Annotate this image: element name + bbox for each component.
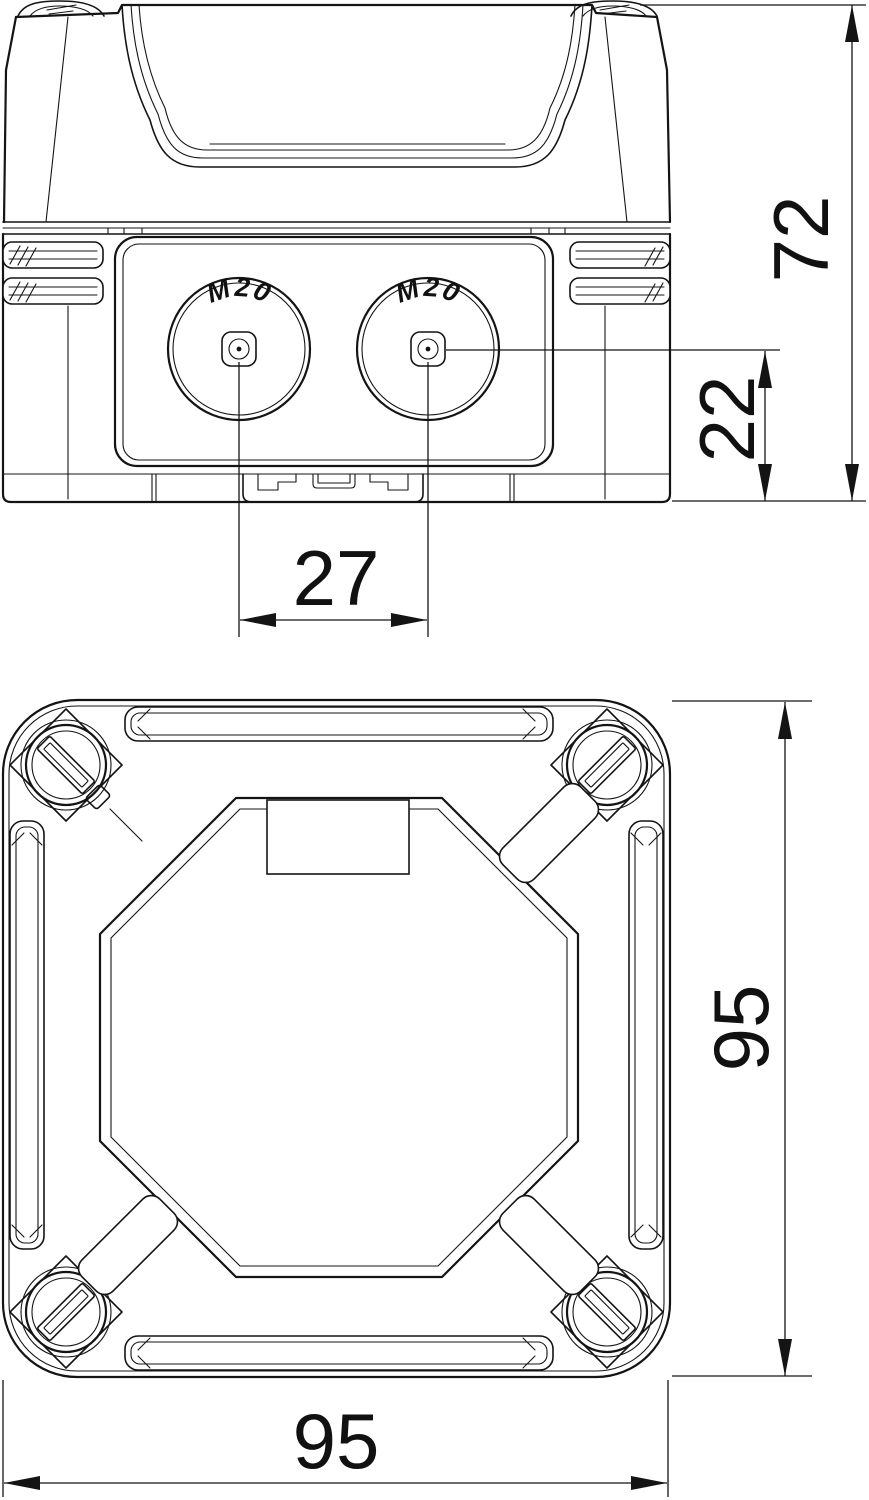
label-plate <box>267 800 409 874</box>
dim-arrow-down <box>778 1339 792 1376</box>
vent-ribs-right <box>570 242 670 304</box>
front-panel <box>115 237 553 466</box>
drawing-sheet: M20 M20 72 22 <box>0 0 869 1500</box>
dim-label-spacing: 27 <box>293 534 380 622</box>
dim-label-height: 72 <box>757 196 845 283</box>
dim-arrow-down <box>758 464 772 501</box>
dim-arrow-up <box>778 702 792 739</box>
plan-view <box>3 700 670 1377</box>
base-body: M20 M20 <box>3 234 670 502</box>
front-view: M20 M20 <box>3 1 670 502</box>
dim-label-entry-height: 22 <box>683 376 771 463</box>
diagonal-pad-top-right <box>495 779 604 888</box>
dimension-depth: 95 <box>672 701 812 1376</box>
technical-drawing: M20 M20 72 22 <box>0 0 869 1500</box>
lid-left-bevel-line <box>46 17 68 222</box>
dim-arrow-down <box>845 464 859 501</box>
edge-channel-bottom <box>125 1336 553 1370</box>
lid-right-bevel-line <box>605 17 627 222</box>
dimension-width: 95 <box>3 1380 668 1497</box>
edge-channel-right <box>629 821 663 1249</box>
vent-ribs-left <box>3 242 103 304</box>
lid-left-edge <box>4 17 16 222</box>
dim-arrow-right <box>391 613 427 627</box>
lid-joint-seam <box>3 228 670 234</box>
edge-channel-left <box>10 821 44 1249</box>
lid <box>3 1 670 222</box>
dim-arrow-right <box>631 1476 667 1490</box>
edge-channel-top <box>125 707 553 741</box>
dim-label-depth: 95 <box>697 985 785 1072</box>
lid-recess-channel <box>122 5 592 167</box>
dim-arrow-left <box>240 613 276 627</box>
dim-label-width: 95 <box>293 1397 380 1485</box>
diagonal-pad-bottom-right <box>495 1191 604 1300</box>
diagonal-pad-bottom-left <box>74 1191 183 1300</box>
mounting-tray <box>152 474 514 502</box>
dim-arrow-up <box>845 5 859 42</box>
dim-arrow-left <box>4 1476 40 1490</box>
